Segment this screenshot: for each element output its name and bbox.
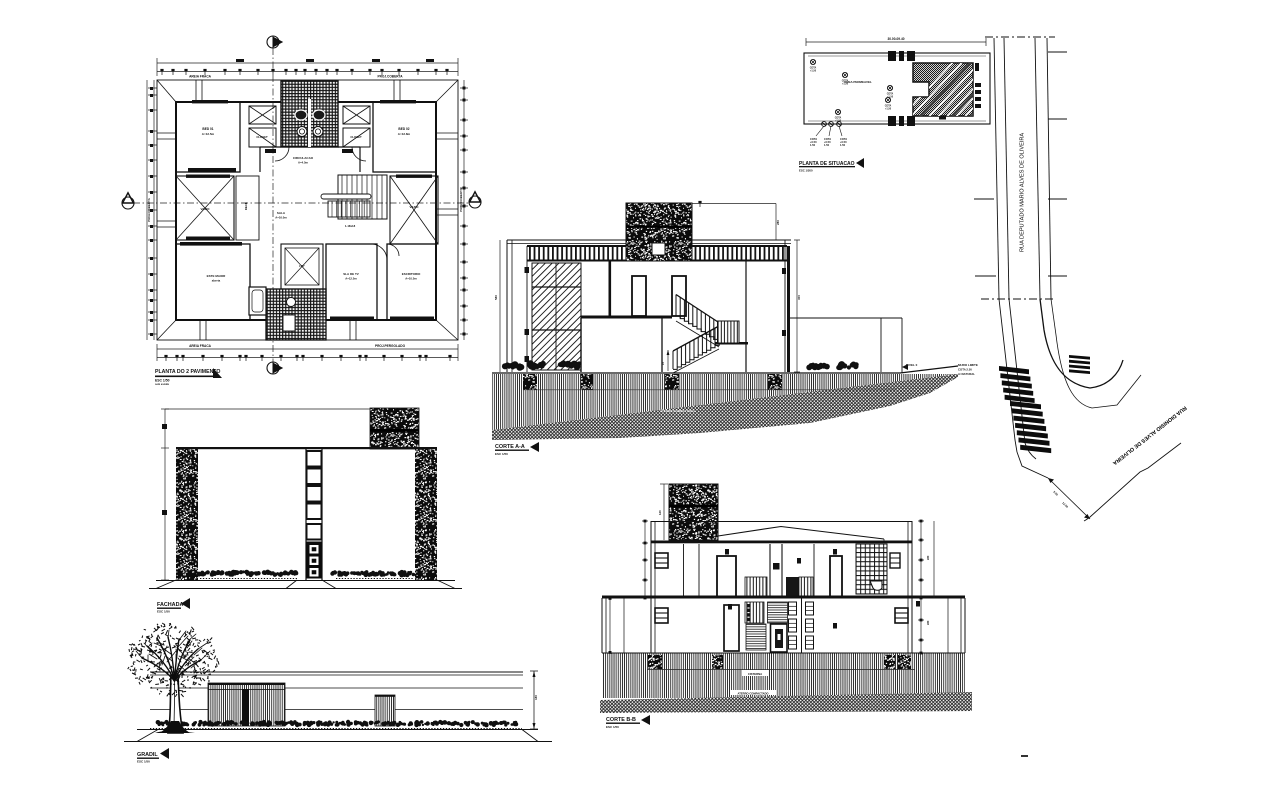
svg-text:CIRCULACAO: CIRCULACAO xyxy=(293,156,314,160)
svg-text:280: 280 xyxy=(926,620,930,625)
svg-text:A=10.5m: A=10.5m xyxy=(405,277,417,281)
svg-text:SLA DE TV: SLA DE TV xyxy=(343,272,359,276)
svg-text:CORTE B-B: CORTE B-B xyxy=(606,717,636,723)
svg-text:580: 580 xyxy=(494,295,498,300)
svg-text:CORTE A-A: CORTE A-A xyxy=(495,444,525,450)
svg-text:ATERRO COMPACTADO: ATERRO COMPACTADO xyxy=(737,692,768,696)
svg-text:30.00-09.40: 30.00-09.40 xyxy=(887,37,904,41)
svg-text:1.50: 1.50 xyxy=(810,143,816,147)
svg-text:A=12.5m: A=12.5m xyxy=(202,132,215,136)
svg-text:A=4.5m: A=4.5m xyxy=(298,161,309,165)
svg-text:CISTERNA: CISTERNA xyxy=(748,672,762,676)
svg-text:280: 280 xyxy=(776,220,780,225)
svg-text:CLOSET: CLOSET xyxy=(256,135,268,139)
svg-text:BED 01: BED 01 xyxy=(202,127,213,131)
svg-text:GRADIL: GRADIL xyxy=(137,752,158,758)
svg-text:PROJ.COBERTA: PROJ.COBERTA xyxy=(377,75,403,79)
svg-text:ESC 1/50: ESC 1/50 xyxy=(606,725,619,729)
svg-text:PROJ.COBERTA: PROJ.COBERTA xyxy=(459,187,463,211)
svg-text:PROJ.PERGOLADO: PROJ.PERGOLADO xyxy=(375,344,406,348)
svg-text:1.50: 1.50 xyxy=(840,143,846,147)
svg-text:180: 180 xyxy=(534,695,538,700)
svg-text:+1.50: +1.50 xyxy=(885,107,892,110)
svg-text:1.50: 1.50 xyxy=(824,143,830,147)
svg-text:A=12.5m: A=12.5m xyxy=(345,277,357,281)
svg-text:AREA PERMEAVEL: AREA PERMEAVEL xyxy=(844,80,872,84)
svg-text:1-18x18: 1-18x18 xyxy=(345,224,356,228)
svg-text:ESC 1/50: ESC 1/50 xyxy=(157,610,170,614)
svg-text:ESC 1/50: ESC 1/50 xyxy=(137,760,150,764)
svg-text:LRY: LRY xyxy=(299,264,305,268)
svg-text:ESCRITORIO: ESCRITORIO xyxy=(402,272,421,276)
svg-text:AREIA FRACA: AREIA FRACA xyxy=(189,75,212,79)
svg-text:A=NATURAL: A=NATURAL xyxy=(958,372,975,376)
svg-text:ESC 1/200: ESC 1/200 xyxy=(799,169,813,173)
svg-text:A=12.8m: A=12.8m xyxy=(398,132,411,136)
svg-text:+1.50: +1.50 xyxy=(810,69,817,72)
svg-text:VAZIO: VAZIO xyxy=(201,207,211,211)
svg-text:SALA: SALA xyxy=(277,211,286,215)
svg-text:CLOSET: CLOSET xyxy=(350,135,362,139)
svg-text:VAZIO: VAZIO xyxy=(410,205,420,209)
svg-text:280: 280 xyxy=(926,555,930,560)
svg-text:BED 02: BED 02 xyxy=(398,127,409,131)
svg-text:COTA 2.50: COTA 2.50 xyxy=(958,368,972,372)
svg-text:DECK: DECK xyxy=(244,202,248,210)
svg-text:ESC 1/50: ESC 1/50 xyxy=(155,379,170,383)
svg-text:aberta: aberta xyxy=(212,279,221,283)
svg-text:120: 120 xyxy=(658,510,662,515)
svg-text:RUA DEPUTADO MARIO ALVES DE OL: RUA DEPUTADO MARIO ALVES DE OLIVEIRA xyxy=(1020,133,1026,252)
svg-text:FACHADA: FACHADA xyxy=(157,602,183,608)
svg-text:PROJ.COBERTA: PROJ.COBERTA xyxy=(147,197,151,221)
svg-text:A=16.0m: A=16.0m xyxy=(275,216,287,220)
svg-text:AREIA FRACA: AREIA FRACA xyxy=(189,344,212,348)
svg-text:PLANTA DO 2 PAVIMENTO: PLANTA DO 2 PAVIMENTO xyxy=(155,369,220,375)
svg-text:sem escala: sem escala xyxy=(155,382,169,386)
svg-text:ESTE MAIOR: ESTE MAIOR xyxy=(207,274,227,278)
svg-text:ESC 1/50: ESC 1/50 xyxy=(495,452,508,456)
svg-text:300: 300 xyxy=(797,295,801,300)
svg-text:ATERRO COMPACTADO: ATERRO COMPACTADO xyxy=(660,409,695,413)
svg-text:MURO LIMITE: MURO LIMITE xyxy=(958,363,978,367)
